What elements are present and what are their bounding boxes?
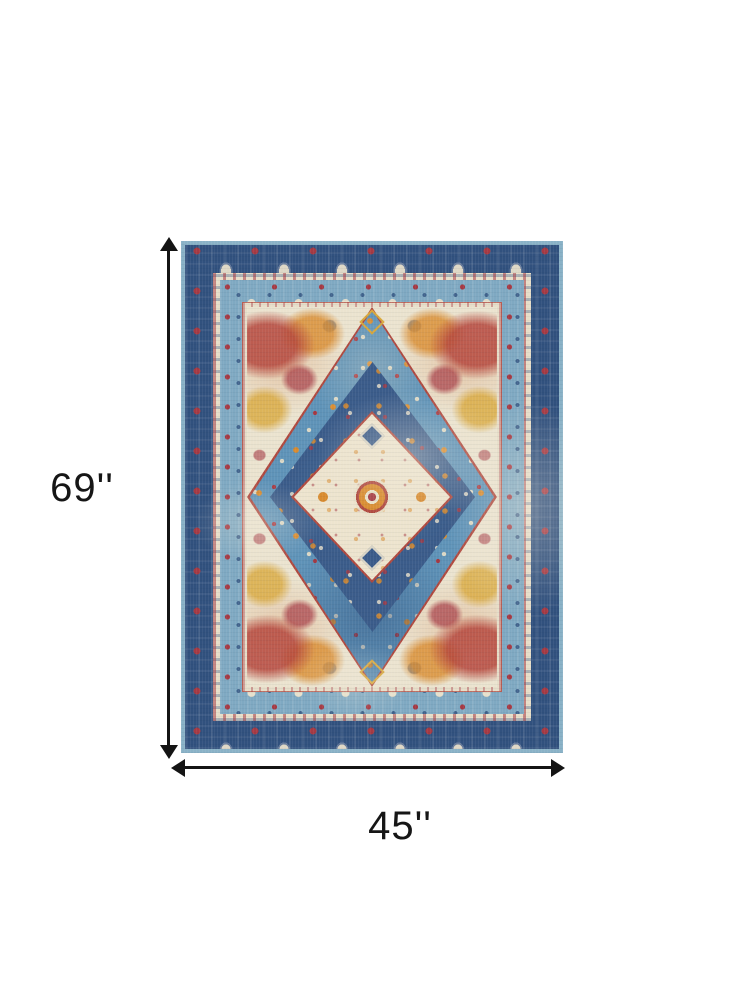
right-arrowhead-icon xyxy=(551,759,565,777)
up-arrowhead-icon xyxy=(160,237,178,251)
product-dimension-figure: 69'' 45'' xyxy=(0,0,739,1000)
medallion-anchor-motif-bottom xyxy=(359,545,384,570)
rug-image xyxy=(181,241,563,753)
medallion-dot-right xyxy=(416,492,426,502)
medallion-anchor-motif-top xyxy=(359,423,384,448)
left-arrowhead-icon xyxy=(171,759,185,777)
horizontal-dimension-line xyxy=(183,766,553,769)
down-arrowhead-icon xyxy=(160,745,178,759)
medallion-flower-rosette xyxy=(351,476,393,518)
height-label: 69'' xyxy=(32,468,132,508)
rug-field xyxy=(247,307,497,687)
medallion-dot-left xyxy=(318,492,328,502)
vertical-dimension-line xyxy=(167,249,170,747)
width-label: 45'' xyxy=(340,806,460,846)
